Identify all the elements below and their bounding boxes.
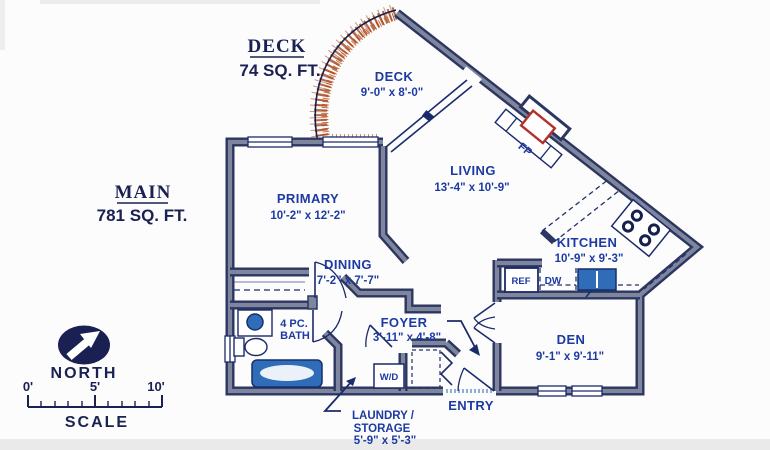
main-header: MAIN 781 SQ. FT. <box>97 182 188 225</box>
closet-rod <box>234 282 305 290</box>
deck-header-title: DECK <box>248 36 307 57</box>
laundry-dims: 5'-9" x 5'-3" <box>354 435 416 447</box>
deck-header: DECK 74 SQ. FT. <box>239 36 320 80</box>
entry-closet <box>412 350 452 388</box>
north-compass: NORTH <box>51 326 118 383</box>
refrigerator-box: REF <box>505 268 538 292</box>
kitchen-dims: 10'-9" x 9'-3" <box>555 253 624 265</box>
den-double-doors <box>474 303 495 343</box>
slider-handle <box>422 110 434 122</box>
entry-door <box>446 368 494 391</box>
deck-header-area: 74 SQ. FT. <box>239 61 320 80</box>
toilet <box>234 338 267 356</box>
main-header-area: 781 SQ. FT. <box>97 206 188 225</box>
bathtub <box>252 360 322 387</box>
bath-vanity <box>238 310 272 336</box>
laundry-label-line1: LAUNDRY / <box>352 410 415 422</box>
scale-ruler: 0' 5' 10' SCALE <box>23 379 165 431</box>
deck-room-label: DECK <box>375 69 414 84</box>
living-room-dims: 13'-4" x 10'-9" <box>434 182 509 194</box>
den-window-2 <box>572 386 602 396</box>
dishwasher-label: DW <box>545 276 562 287</box>
scale-label: SCALE <box>65 414 129 431</box>
kitchen-label: KITCHEN <box>557 235 618 250</box>
bath-label-line2: BATH <box>280 330 310 342</box>
scale-tick-0: 0' <box>23 379 33 394</box>
deck-room-dims: 9'-0" x 8'-0" <box>361 87 423 99</box>
primary-window-2 <box>323 137 378 147</box>
washer-dryer-box: W/D <box>374 364 404 388</box>
bath-sink <box>247 314 263 330</box>
den-dims: 9'-1" x 9'-11" <box>536 351 604 363</box>
bifold-doors <box>441 352 452 385</box>
dining-room-label: DINING <box>324 257 372 272</box>
laundry-label-line2: STORAGE <box>354 423 411 435</box>
foyer-label: FOYER <box>381 315 428 330</box>
main-header-title: MAIN <box>115 182 172 203</box>
scale-tick-10: 10' <box>147 379 165 394</box>
foyer-dims: 3'-11" x 4'-8" <box>373 332 441 344</box>
scale-tick-5: 5' <box>90 379 100 394</box>
living-room-label: LIVING <box>450 163 496 178</box>
dining-room-dims: 7'-2" x 7'-7" <box>317 275 379 287</box>
kitchen-counter-cap <box>542 231 554 242</box>
stove <box>612 200 671 257</box>
entry-label: ENTRY <box>448 398 494 413</box>
north-label: NORTH <box>51 365 118 382</box>
den-window-1 <box>538 386 566 396</box>
floorplan-canvas: FP REF DW <box>0 0 770 450</box>
bath-label-line1: 4 PC. <box>280 318 308 330</box>
primary-window-1 <box>248 137 292 147</box>
primary-room-dims: 10'-2" x 12'-2" <box>270 210 345 222</box>
den-label: DEN <box>557 332 586 347</box>
washer-dryer-label: W/D <box>380 372 399 383</box>
refrigerator-label: REF <box>512 276 531 287</box>
primary-room-label: PRIMARY <box>277 191 339 206</box>
scale-major-ticks <box>28 395 162 407</box>
floorplan-svg: FP REF DW <box>0 0 770 450</box>
